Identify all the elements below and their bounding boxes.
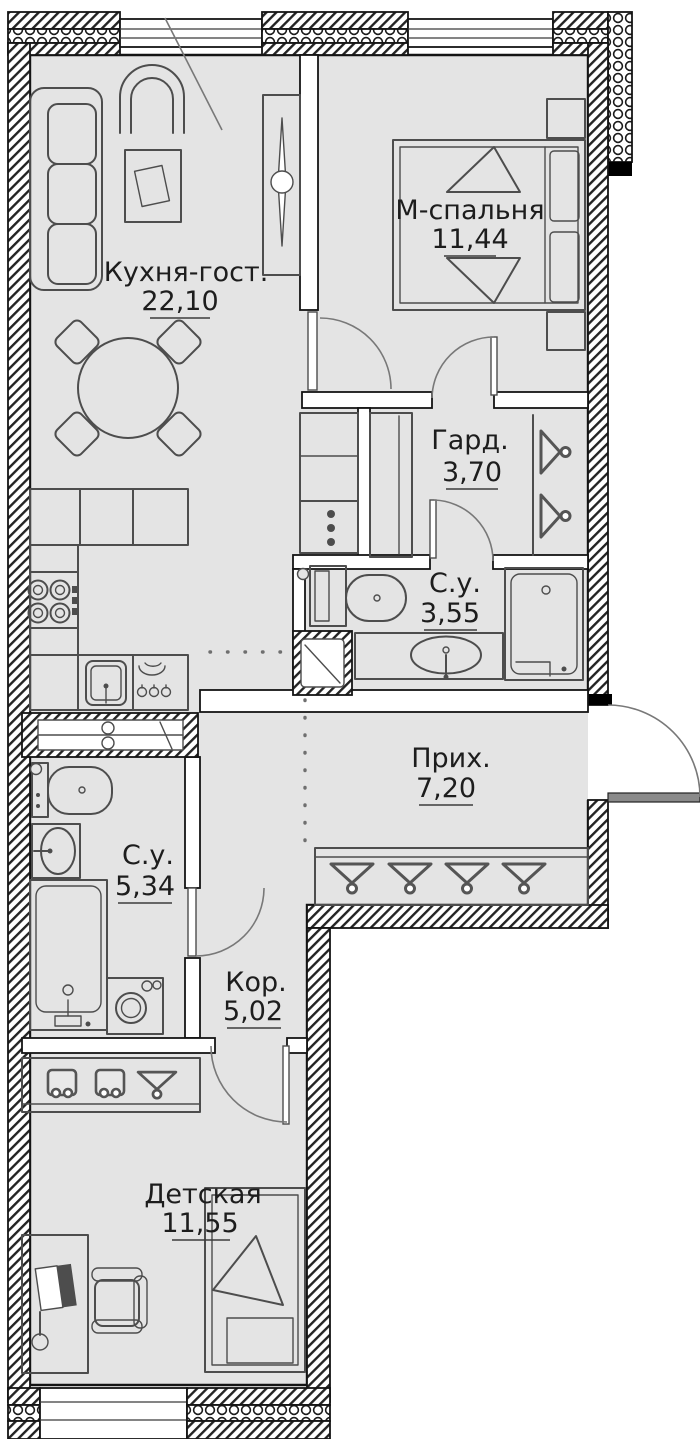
wall-pier (187, 1388, 330, 1439)
floor-plan: Кухня-гост. 22,10 М-спальня 11,44 Гард. … (0, 0, 700, 1439)
room-area: 11,44 (431, 224, 508, 255)
room-name: Детская (144, 1179, 261, 1210)
room-area: 3,70 (442, 457, 502, 488)
floor-plan-page: Кухня-гост. 22,10 М-спальня 11,44 Гард. … (0, 0, 700, 1439)
bedroom-wall (302, 392, 432, 408)
children-room-wall (287, 1038, 307, 1053)
room-label-bathroom-2: С.у. 5,34 (115, 840, 175, 903)
kitchen-bedroom-partition (300, 55, 318, 310)
window (408, 19, 553, 47)
wardrobe-wall (358, 408, 370, 557)
room-name: Кухня-гост. (104, 257, 269, 288)
wall-pier (262, 12, 408, 55)
room-area: 7,20 (416, 773, 476, 804)
room-label-corridor: Кор. 5,02 (223, 967, 287, 1028)
wall-pier (8, 1388, 40, 1439)
shoe-box-icon (48, 1070, 76, 1097)
room-area: 3,55 (420, 598, 480, 629)
ventilation-shaft (293, 631, 352, 695)
room-name: С.у. (429, 568, 481, 599)
bathroom2-right-wall (185, 958, 200, 1038)
window (120, 19, 262, 47)
room-label-bathroom-1: С.у. 3,55 (420, 568, 481, 630)
hallway-bottom-wall (307, 905, 608, 928)
bathroom1-bottom-wall (200, 690, 588, 712)
bathroom2-right-wall (185, 757, 200, 888)
room-name: Прих. (411, 743, 491, 774)
room-area: 22,10 (141, 286, 218, 317)
bathroom1-top-wall (493, 555, 588, 569)
wall-step (608, 162, 632, 176)
shoe-box-icon (96, 1070, 124, 1097)
room-area: 11,55 (161, 1208, 238, 1239)
room-name: Гард. (431, 425, 508, 456)
room-name: М-спальня (395, 195, 544, 226)
lower-right-wall (307, 928, 330, 1402)
room-name: Кор. (225, 967, 286, 998)
utility-shaft (22, 713, 198, 757)
room-label-wardrobe: Гард. 3,70 (431, 425, 508, 489)
window (40, 1388, 187, 1439)
room-area: 5,02 (223, 996, 283, 1027)
right-wall-upper (588, 43, 608, 705)
entrance-door (608, 705, 700, 802)
room-area: 5,34 (115, 871, 175, 902)
wall-insulation (608, 12, 632, 162)
room-name: С.у. (122, 840, 174, 871)
children-room-wall (22, 1038, 215, 1053)
bedroom-wall (494, 392, 588, 408)
